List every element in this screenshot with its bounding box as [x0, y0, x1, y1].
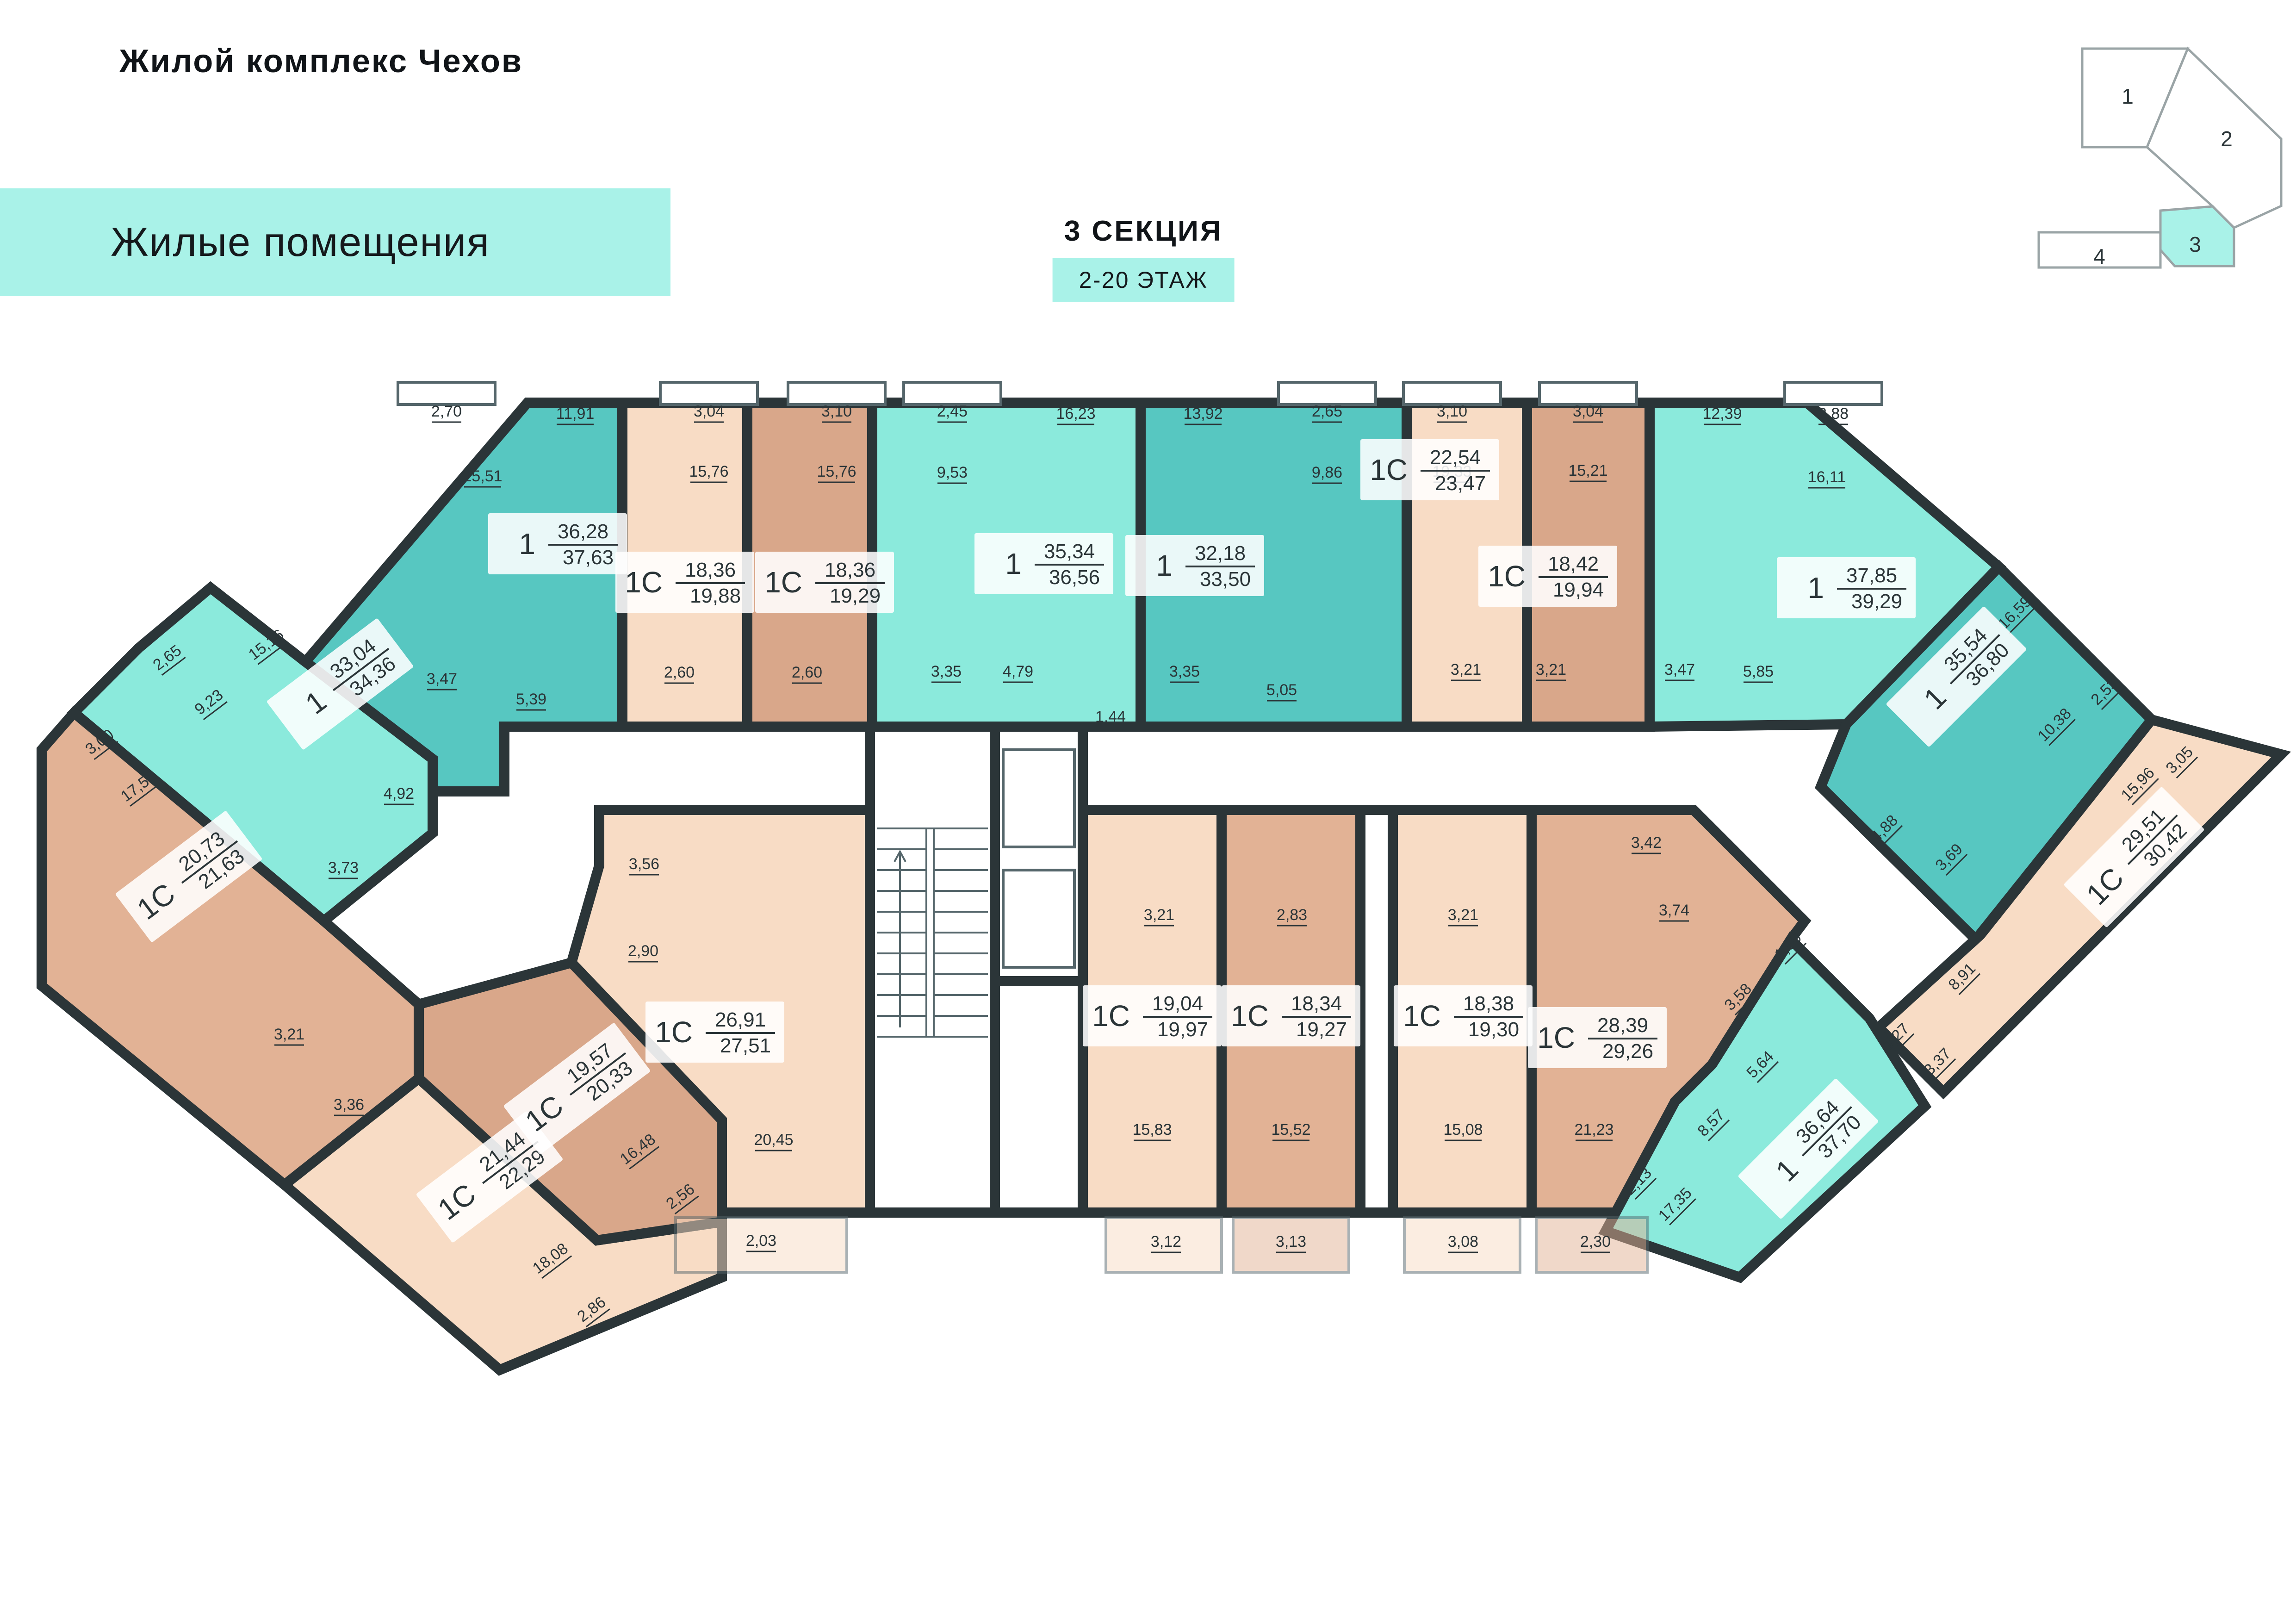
- room-area-label: 15,52: [1271, 1121, 1310, 1140]
- room-area-label: 2,88: [1818, 405, 1849, 424]
- svg-text:15,21: 15,21: [1568, 462, 1607, 479]
- svg-text:15,76: 15,76: [689, 463, 728, 480]
- svg-text:4,79: 4,79: [1003, 663, 1033, 680]
- svg-text:1: 1: [519, 527, 535, 560]
- room-area-label: 3,35: [931, 663, 962, 682]
- svg-text:21,23: 21,23: [1574, 1121, 1613, 1139]
- svg-text:3,73: 3,73: [328, 859, 359, 877]
- window-mark: [788, 382, 885, 404]
- svg-text:3,08: 3,08: [1448, 1233, 1478, 1251]
- room-area-label: 15,21: [1568, 462, 1607, 481]
- room-area-label: 20,45: [754, 1131, 793, 1151]
- svg-text:19,30: 19,30: [1468, 1018, 1519, 1041]
- svg-text:18,42: 18,42: [1548, 553, 1599, 575]
- room-area-label: 5,05: [1266, 681, 1297, 701]
- room-area-label: 3,56: [629, 855, 659, 875]
- svg-text:3,21: 3,21: [274, 1026, 304, 1043]
- room-area-label: 3,10: [821, 403, 852, 422]
- svg-text:23,47: 23,47: [1435, 472, 1486, 495]
- svg-text:2,45: 2,45: [937, 403, 968, 420]
- apartment-label-1s-28-39: 1С28,3929,26: [1528, 1007, 1667, 1068]
- room-area-label: 3,10: [1437, 403, 1467, 422]
- svg-text:2: 2: [2221, 127, 2233, 151]
- vent-shaft: [1360, 810, 1393, 1213]
- corridor-pocket: [995, 981, 1083, 1213]
- room-area-label: 15,83: [1132, 1121, 1172, 1140]
- room-area-label: 11,91: [556, 405, 595, 424]
- window-mark: [904, 382, 1001, 404]
- svg-text:16,23: 16,23: [1056, 405, 1095, 423]
- svg-text:32,18: 32,18: [1195, 542, 1246, 565]
- svg-text:2,83: 2,83: [1277, 906, 1307, 924]
- svg-text:22,54: 22,54: [1430, 446, 1481, 469]
- svg-text:3,21: 3,21: [1536, 661, 1566, 678]
- svg-text:18,38: 18,38: [1463, 992, 1514, 1015]
- svg-text:3,35: 3,35: [931, 663, 962, 680]
- room-area-label: 2,03: [746, 1232, 776, 1251]
- section-header: 3 СЕКЦИЯ 2-20 ЭТАЖ: [1053, 214, 1235, 302]
- room-area-label: 3,21: [1536, 661, 1566, 680]
- apartment-label-1s-18-36: 1С18,3619,88: [615, 552, 754, 613]
- apartment-label-1-35-34: 135,3436,56: [974, 533, 1113, 594]
- svg-text:19,29: 19,29: [830, 585, 881, 607]
- svg-text:4,92: 4,92: [384, 785, 414, 803]
- svg-text:26,91: 26,91: [715, 1008, 766, 1031]
- minimap-section-4[interactable]: 4: [2039, 232, 2160, 268]
- svg-text:15,08: 15,08: [1443, 1121, 1483, 1139]
- floors-badge: 2-20 ЭТАЖ: [1053, 258, 1235, 303]
- room-area-label: 3,12: [1151, 1233, 1181, 1252]
- svg-text:1: 1: [1005, 547, 1022, 580]
- room-area-label: 15,51: [463, 467, 502, 487]
- svg-text:1С: 1С: [1092, 999, 1130, 1033]
- room-area-label: 16,23: [1056, 405, 1095, 424]
- svg-text:2,60: 2,60: [664, 664, 695, 681]
- svg-text:28,39: 28,39: [1597, 1014, 1648, 1037]
- svg-text:3,47: 3,47: [1664, 661, 1695, 678]
- svg-text:3,21: 3,21: [1144, 906, 1174, 924]
- svg-text:1С: 1С: [1403, 999, 1441, 1033]
- svg-text:3,12: 3,12: [1151, 1233, 1181, 1251]
- elevator-shaft-icon: [1003, 870, 1074, 967]
- window-mark: [1403, 382, 1501, 404]
- room-area-label: 2,30: [1580, 1233, 1611, 1252]
- svg-text:19,04: 19,04: [1152, 992, 1203, 1015]
- apartment-label-1-32-18: 132,1833,50: [1125, 535, 1264, 596]
- room-area-label: 13,92: [1183, 405, 1222, 424]
- room-area-label: 2,90: [628, 942, 658, 962]
- svg-text:9,86: 9,86: [1312, 464, 1342, 481]
- room-area-label: 3,04: [1573, 403, 1603, 422]
- room-area-label: 2,83: [1277, 906, 1307, 926]
- svg-text:13,92: 13,92: [1183, 405, 1222, 423]
- room-area-label: 9,53: [937, 464, 968, 483]
- svg-text:2,90: 2,90: [628, 942, 658, 960]
- apartment-label-1s-26-91: 1С26,9127,51: [645, 1002, 784, 1063]
- svg-text:3,21: 3,21: [1451, 661, 1481, 678]
- residential-banner: Жилые помещения: [0, 188, 670, 296]
- svg-text:3,10: 3,10: [1437, 403, 1467, 420]
- residential-banner-label: Жилые помещения: [111, 218, 490, 266]
- svg-text:3: 3: [2189, 232, 2201, 256]
- room-area-label: 3,08: [1448, 1233, 1478, 1252]
- svg-text:2,70: 2,70: [431, 403, 462, 420]
- svg-text:27,51: 27,51: [720, 1034, 771, 1057]
- svg-text:19,88: 19,88: [690, 585, 741, 607]
- svg-text:36,28: 36,28: [558, 520, 608, 543]
- svg-text:19,97: 19,97: [1157, 1018, 1208, 1041]
- svg-text:36,56: 36,56: [1049, 566, 1100, 589]
- svg-text:39,29: 39,29: [1851, 590, 1902, 613]
- svg-text:2,03: 2,03: [746, 1232, 776, 1250]
- room-area-label: 3,47: [1664, 661, 1695, 680]
- svg-text:12,39: 12,39: [1702, 405, 1742, 423]
- apartment-label-1s-18-42: 1С18,4219,94: [1478, 546, 1617, 607]
- svg-text:15,76: 15,76: [817, 463, 856, 480]
- room-area-label: 3,73: [328, 859, 359, 878]
- svg-text:5,85: 5,85: [1743, 663, 1774, 680]
- svg-text:1: 1: [2122, 84, 2134, 108]
- room-area-label: 3,21: [274, 1026, 304, 1045]
- svg-text:3,13: 3,13: [1276, 1233, 1306, 1251]
- svg-text:15,52: 15,52: [1271, 1121, 1310, 1139]
- svg-text:1С: 1С: [1537, 1021, 1575, 1054]
- elevator-shaft-icon: [1003, 750, 1074, 847]
- svg-text:19,27: 19,27: [1296, 1018, 1347, 1041]
- apartment-label-1s-19-04: 1С19,0419,97: [1083, 985, 1222, 1046]
- svg-text:1С: 1С: [625, 566, 663, 599]
- room-area-label: 12,39: [1702, 405, 1742, 424]
- svg-text:37,85: 37,85: [1846, 564, 1897, 587]
- apartment-label-1s-18-36: 1С18,3619,29: [755, 552, 894, 613]
- svg-text:2,30: 2,30: [1580, 1233, 1611, 1251]
- svg-text:15,51: 15,51: [463, 467, 502, 485]
- room-area-label: 2,45: [937, 403, 968, 422]
- apartment-label-1-37-85: 137,8539,29: [1777, 557, 1916, 618]
- svg-text:1С: 1С: [1231, 999, 1269, 1033]
- apartment-label-1s-18-38: 1С18,3819,30: [1394, 985, 1533, 1046]
- room-area-label: 15,76: [689, 463, 728, 482]
- svg-text:1: 1: [1807, 571, 1824, 604]
- svg-text:4: 4: [2093, 244, 2105, 268]
- room-area-label: 3,13: [1276, 1233, 1306, 1252]
- svg-text:1,44: 1,44: [1095, 708, 1126, 726]
- svg-text:3,47: 3,47: [427, 670, 457, 688]
- svg-text:35,34: 35,34: [1044, 540, 1095, 563]
- room-area-label: 3,04: [694, 403, 724, 422]
- room-area-label: 3,36: [334, 1096, 364, 1115]
- room-area-label: 2,65: [1312, 403, 1342, 422]
- svg-text:2,65: 2,65: [1312, 403, 1342, 420]
- svg-text:3,36: 3,36: [334, 1096, 364, 1114]
- room-area-label: 3,21: [1451, 661, 1481, 680]
- svg-text:5,05: 5,05: [1266, 681, 1297, 699]
- svg-text:29,26: 29,26: [1602, 1040, 1653, 1063]
- apartment-label-1s-18-34: 1С18,3419,27: [1222, 985, 1360, 1046]
- svg-text:19,94: 19,94: [1553, 579, 1604, 601]
- svg-text:2,88: 2,88: [1818, 405, 1849, 423]
- svg-text:1С: 1С: [1488, 560, 1526, 593]
- svg-text:1С: 1С: [764, 566, 802, 599]
- svg-text:3,35: 3,35: [1169, 663, 1200, 680]
- room-area-label: 21,23: [1574, 1121, 1613, 1140]
- svg-text:2,60: 2,60: [792, 664, 822, 681]
- room-area-label: 2,60: [792, 664, 822, 683]
- svg-text:33,50: 33,50: [1200, 568, 1251, 591]
- svg-text:18,36: 18,36: [825, 559, 875, 581]
- svg-text:5,39: 5,39: [516, 691, 546, 708]
- minimap-section-3[interactable]: 3: [2160, 206, 2234, 266]
- svg-text:18,36: 18,36: [685, 559, 736, 581]
- room-area-label: 5,85: [1743, 663, 1774, 682]
- window-mark: [1278, 382, 1376, 404]
- svg-text:37,63: 37,63: [563, 546, 614, 569]
- svg-text:20,45: 20,45: [754, 1131, 793, 1149]
- room-area-label: 3,21: [1144, 906, 1174, 926]
- room-area-label: 4,92: [384, 785, 414, 804]
- svg-text:16,11: 16,11: [1808, 468, 1846, 486]
- window-mark: [1539, 382, 1637, 404]
- svg-text:3,56: 3,56: [629, 855, 659, 873]
- svg-text:11,91: 11,91: [556, 405, 595, 423]
- room-area-label: 9,86: [1312, 464, 1342, 483]
- window-mark: [398, 382, 495, 404]
- window-mark: [1785, 382, 1882, 404]
- room-area-label: 1,44: [1095, 708, 1126, 728]
- room-area-label: 3,35: [1169, 663, 1200, 682]
- room-area-label: 2,70: [431, 403, 462, 422]
- window-mark: [660, 382, 757, 404]
- room-area-label: 5,39: [516, 691, 546, 710]
- room-area-label: 15,76: [817, 463, 856, 482]
- section-title: 3 СЕКЦИЯ: [1053, 214, 1235, 248]
- apartment-label-1s-22-54: 1С22,5423,47: [1360, 439, 1499, 500]
- svg-text:3,21: 3,21: [1448, 906, 1478, 924]
- svg-text:3,42: 3,42: [1631, 834, 1662, 852]
- room-area-label: 4,79: [1003, 663, 1033, 682]
- svg-text:3,04: 3,04: [694, 403, 724, 420]
- room-area-label: 16,11: [1808, 468, 1846, 488]
- svg-text:1С: 1С: [655, 1015, 693, 1049]
- svg-text:3,04: 3,04: [1573, 403, 1603, 420]
- room-area-label: 3,47: [427, 670, 457, 690]
- room-area-label: 15,08: [1443, 1121, 1483, 1140]
- page-title: Жилой комплекс Чехов: [119, 42, 523, 80]
- room-area-label: 3,42: [1631, 834, 1662, 853]
- svg-text:1С: 1С: [1370, 453, 1408, 486]
- apartment-label-1-36-28: 136,2837,63: [488, 513, 627, 574]
- svg-text:18,34: 18,34: [1291, 992, 1342, 1015]
- room-area-label: 3,21: [1448, 906, 1478, 926]
- svg-text:15,83: 15,83: [1132, 1121, 1172, 1139]
- svg-text:3,10: 3,10: [821, 403, 852, 420]
- svg-text:3,74: 3,74: [1659, 902, 1689, 919]
- svg-text:1: 1: [1156, 549, 1173, 582]
- room-area-label: 2,60: [664, 664, 695, 683]
- room-area-label: 3,74: [1659, 902, 1689, 921]
- svg-text:9,53: 9,53: [937, 464, 968, 481]
- floor-plan-page: 2,7011,9115,513,475,3915,162,659,234,923…: [0, 0, 2296, 1624]
